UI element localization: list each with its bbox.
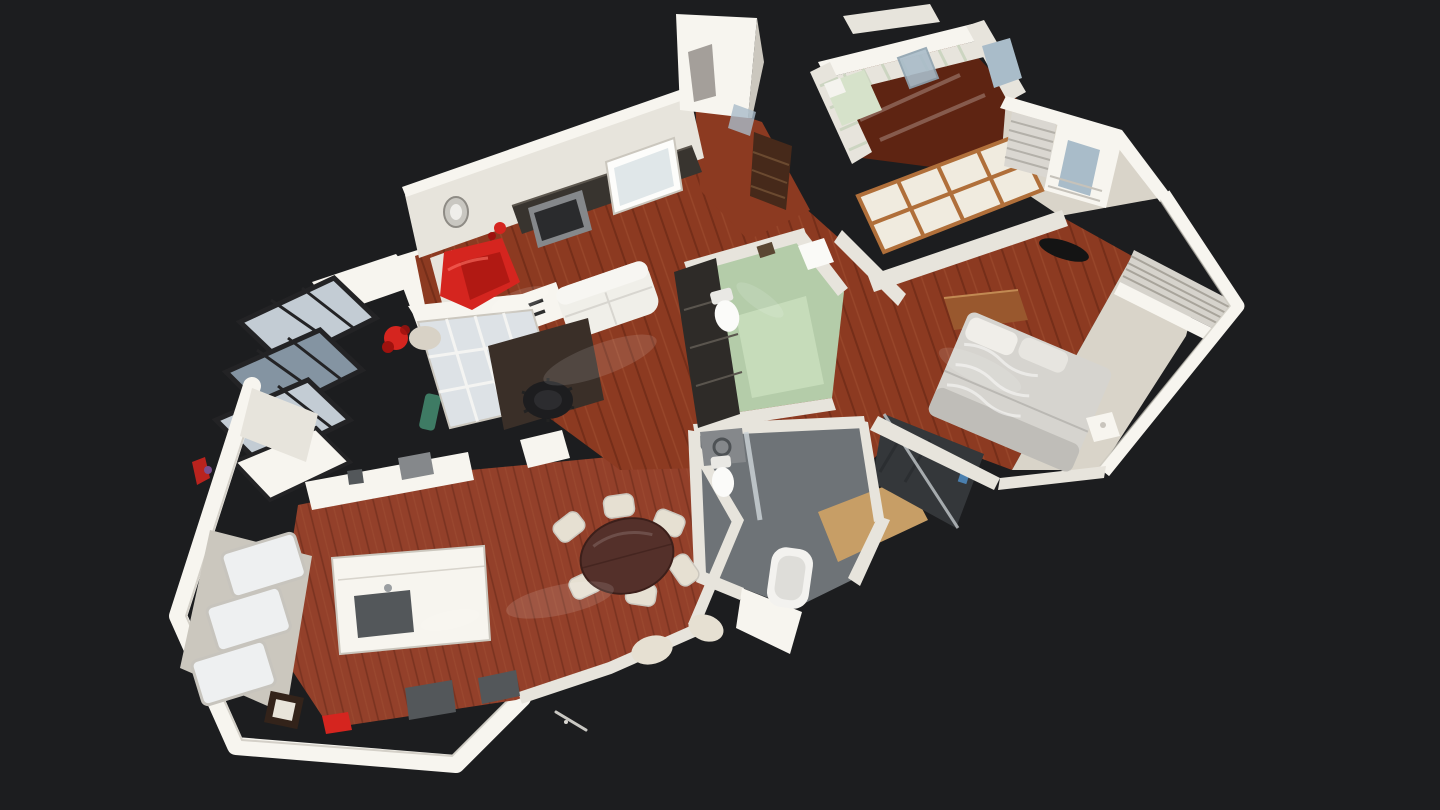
red-flowers <box>382 341 394 353</box>
wall-clock <box>444 197 468 227</box>
cooktop <box>347 469 364 485</box>
dining-chair <box>603 493 636 519</box>
red-flower-vase <box>488 232 496 240</box>
red-flower-vase <box>494 222 506 234</box>
scan-debris <box>564 720 568 724</box>
side-table <box>409 326 441 350</box>
kitchen-furniture <box>332 546 490 654</box>
dollhouse-3d-viewport[interactable] <box>0 0 1440 810</box>
red-flowers <box>400 325 410 335</box>
entrance-wall-slab <box>676 14 757 118</box>
apartment-3d-model <box>0 0 1440 810</box>
faucet <box>384 584 392 592</box>
island-sink <box>354 590 414 638</box>
laundry-colorful-item <box>204 466 212 474</box>
nightstand-lamp <box>1100 422 1106 428</box>
